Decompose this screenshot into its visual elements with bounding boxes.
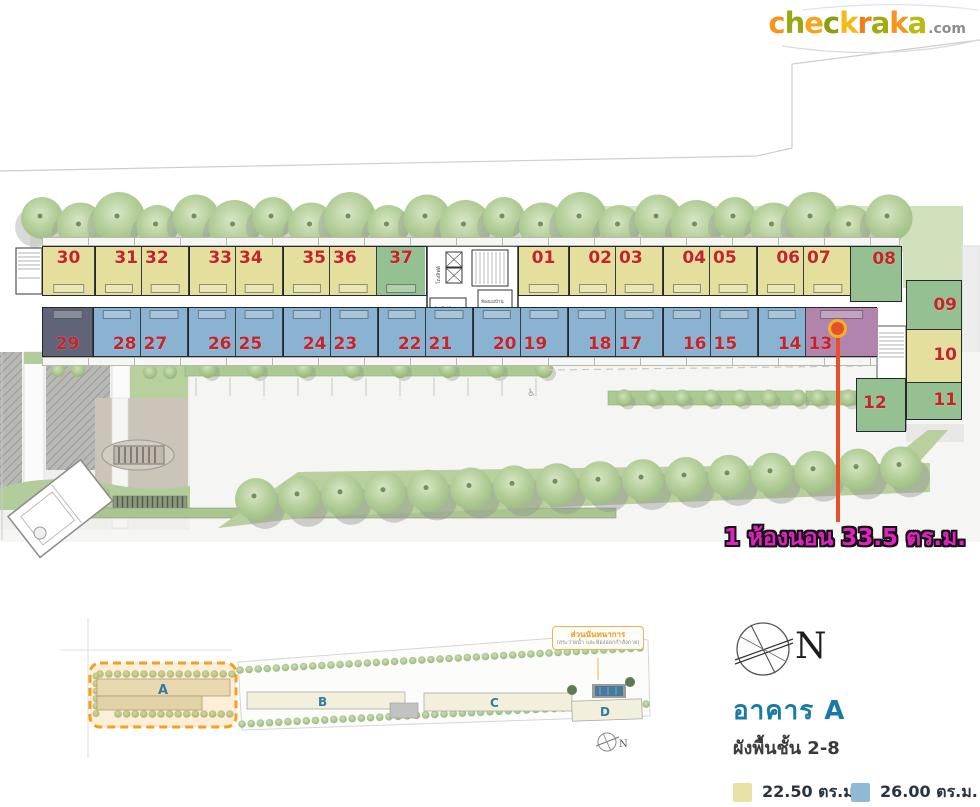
unit-number: 36 (333, 250, 357, 267)
unit-number: 08 (872, 251, 896, 268)
unit-31: 31 (95, 247, 142, 295)
unit-number: 14 (778, 336, 802, 353)
unit-03: 03 (616, 247, 663, 295)
unit-number: 19 (524, 336, 548, 353)
site-label-d: D (600, 705, 610, 719)
unit-27: 27 (141, 308, 189, 356)
unit-number: 29 (56, 336, 80, 353)
unit-number: 06 (776, 250, 800, 267)
unit-14: 14 (758, 308, 806, 356)
unit-02: 02 (569, 247, 616, 295)
unit-number: 11 (933, 392, 961, 409)
site-compass-icon: N (596, 733, 628, 751)
bottom-band: 2928272625242322212019181716151413 (42, 307, 877, 357)
unit-number: 25 (239, 336, 263, 353)
unit-22: 22 (378, 308, 426, 356)
compass-north-label: N (795, 626, 827, 667)
unit-29: 29 (43, 308, 93, 356)
unit-20: 20 (473, 308, 521, 356)
logo-wordmark: checkraka (768, 18, 926, 37)
unit-30: 30 (43, 247, 95, 295)
top-band-west: 3031323334353637 (42, 246, 427, 296)
unit-number: 37 (389, 250, 413, 267)
unit-15: 15 (711, 308, 759, 356)
logo-letter: c (768, 6, 784, 40)
unit-35: 35 (283, 247, 330, 295)
site-label-a: A (158, 683, 168, 698)
logo-letter: a (871, 6, 890, 40)
legend-label: 26.00 ตร.ม. (880, 780, 978, 805)
unit-number: 04 (682, 250, 706, 267)
accessible-parking-icon: ♿ (527, 388, 536, 399)
unit-17: 17 (616, 308, 664, 356)
floor-plan-canvas: ♿ (0, 0, 980, 807)
top-band-east: 01020304050607 (518, 246, 850, 296)
unit-number: 15 (714, 336, 738, 353)
unit-number: 26 (208, 336, 232, 353)
unit-28: 28 (93, 308, 141, 356)
unit-12: 12 (856, 378, 906, 432)
unit-number: 21 (429, 336, 453, 353)
unit-18: 18 (568, 308, 616, 356)
legend-items: 22.50 ตร.ม. 26.00 ตร.ม. 23.00 ตร.ม. 26.5… (733, 778, 973, 807)
lift-hall-label: โถงลิฟต์ (435, 266, 442, 284)
checkraka-logo[interactable]: checkraka.com (768, 6, 966, 40)
unit-19: 19 (521, 308, 569, 356)
unit-number: 09 (933, 297, 961, 314)
unit-01: 01 (519, 247, 569, 295)
floor-range: ผังพื้นชั้น 2-8 (733, 733, 973, 762)
unit-24: 24 (283, 308, 331, 356)
recreation-title: ส่วนนันทนาการ (554, 630, 642, 640)
logo-letter: k (839, 6, 857, 40)
legend-swatch-22-50 (733, 783, 752, 802)
unit-number: 20 (493, 336, 517, 353)
unit-number: 33 (208, 250, 232, 267)
site-pool (595, 686, 623, 696)
logo-suffix: .com (928, 21, 966, 37)
callout-line (836, 336, 840, 522)
unit-34: 34 (236, 247, 283, 295)
unit-23: 23 (331, 308, 379, 356)
unit-07: 07 (804, 247, 851, 295)
unit-11: 11 (907, 383, 961, 419)
site-label-c: C (490, 696, 499, 710)
unit-26: 26 (188, 308, 236, 356)
south-balcony-strip (42, 357, 877, 366)
east-wing: 091011 (906, 280, 962, 420)
logo-letter: e (804, 6, 823, 40)
logo-letter: r (857, 6, 870, 40)
north-balcony-strip (42, 237, 900, 246)
unit-08: 08 (850, 246, 902, 302)
unit-04: 04 (663, 247, 710, 295)
unit-number: 02 (588, 250, 612, 267)
unit-09: 09 (907, 281, 961, 330)
maid-room-label: ห้องแม่บ้าน (481, 299, 505, 305)
callout-text: 1 ห้องนอน 33.5 ตร.ม. (724, 520, 966, 556)
unit-10: 10 (907, 330, 961, 382)
unit-number: 17 (619, 336, 643, 353)
recreation-subtitle: (สระว่ายน้ำ และห้องออกกำลังกาย) (554, 640, 642, 647)
unit-number: 18 (588, 336, 612, 353)
unit-number: 31 (114, 250, 138, 267)
legend-item-22-50: 22.50 ตร.ม. (733, 780, 851, 805)
unit-number: 27 (144, 336, 168, 353)
unit-36: 36 (330, 247, 377, 295)
logo-letter: c (823, 6, 839, 40)
unit-05: 05 (710, 247, 757, 295)
logo-letter: a (908, 6, 927, 40)
unit-number: 10 (933, 347, 961, 364)
unit-number: 23 (334, 336, 358, 353)
legend-swatch-26-00 (851, 783, 870, 802)
unit-number: 07 (807, 250, 831, 267)
unit-number: 32 (145, 250, 169, 267)
unit-number: 24 (303, 336, 327, 353)
unit-37: 37 (377, 247, 425, 295)
unit-33: 33 (189, 247, 236, 295)
unit-16: 16 (663, 308, 711, 356)
callout-marker (828, 319, 847, 338)
logo-letter: h (785, 6, 805, 40)
unit-number: 28 (113, 336, 137, 353)
unit-06: 06 (757, 247, 804, 295)
site-north-label: N (619, 739, 628, 750)
building-title: อาคาร A (733, 690, 973, 731)
unit-number: 01 (532, 250, 556, 267)
unit-number: 35 (302, 250, 326, 267)
logo-letter: k (889, 6, 907, 40)
unit-number: 12 (863, 395, 887, 412)
legend-label: 22.50 ตร.ม. (762, 780, 860, 805)
unit-25: 25 (236, 308, 284, 356)
unit-number: 22 (398, 336, 422, 353)
legend-panel: N อาคาร A ผังพื้นชั้น 2-8 22.50 ตร.ม. 26… (733, 618, 973, 807)
unit-number: 13 (809, 336, 833, 353)
legend-item-26-00: 26.00 ตร.ม. (851, 780, 978, 805)
unit-number: 30 (57, 250, 81, 267)
unit-number: 03 (619, 250, 643, 267)
unit-32: 32 (142, 247, 189, 295)
unit-number: 16 (683, 336, 707, 353)
unit-21: 21 (426, 308, 474, 356)
unit-number: 34 (239, 250, 263, 267)
unit-number: 05 (713, 250, 737, 267)
site-label-b: B (318, 695, 327, 709)
recreation-label-box: ส่วนนันทนาการ (สระว่ายน้ำ และห้องออกกำลั… (552, 626, 644, 650)
